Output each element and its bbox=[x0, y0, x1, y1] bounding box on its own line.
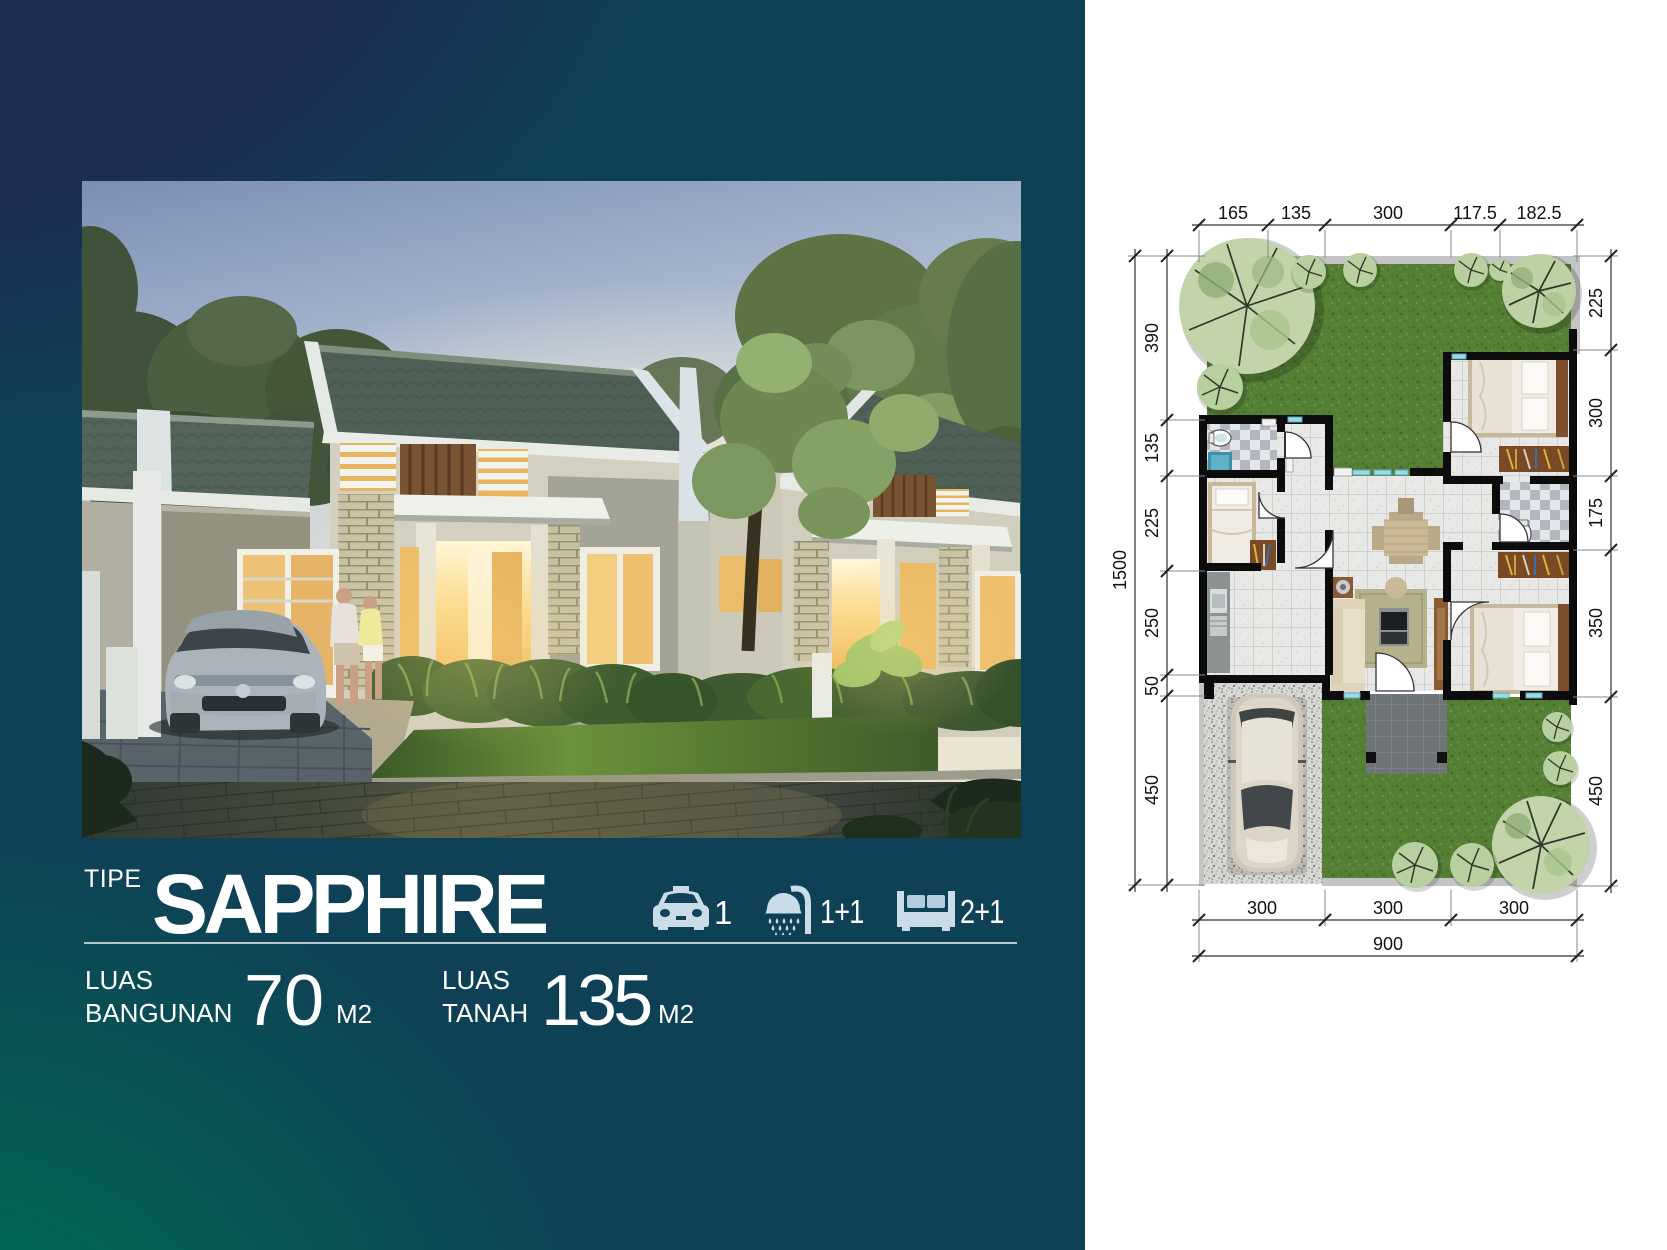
svg-text:182.5: 182.5 bbox=[1516, 203, 1561, 223]
svg-text:450: 450 bbox=[1586, 776, 1606, 806]
svg-text:1500: 1500 bbox=[1110, 550, 1130, 590]
svg-text:175: 175 bbox=[1586, 498, 1606, 528]
svg-text:390: 390 bbox=[1142, 323, 1162, 353]
svg-text:225: 225 bbox=[1142, 508, 1162, 538]
svg-text:300: 300 bbox=[1586, 398, 1606, 428]
svg-text:300: 300 bbox=[1247, 898, 1277, 918]
svg-text:135: 135 bbox=[1142, 433, 1162, 463]
svg-text:350: 350 bbox=[1586, 608, 1606, 638]
svg-text:250: 250 bbox=[1142, 608, 1162, 638]
svg-text:117.5: 117.5 bbox=[1453, 203, 1497, 223]
svg-text:135: 135 bbox=[1281, 203, 1311, 223]
svg-text:50: 50 bbox=[1142, 676, 1162, 696]
svg-text:165: 165 bbox=[1218, 203, 1248, 223]
svg-text:225: 225 bbox=[1586, 288, 1606, 318]
svg-text:300: 300 bbox=[1499, 898, 1529, 918]
svg-text:450: 450 bbox=[1142, 775, 1162, 805]
svg-text:900: 900 bbox=[1373, 934, 1403, 954]
svg-text:300: 300 bbox=[1373, 898, 1403, 918]
svg-text:300: 300 bbox=[1373, 203, 1403, 223]
